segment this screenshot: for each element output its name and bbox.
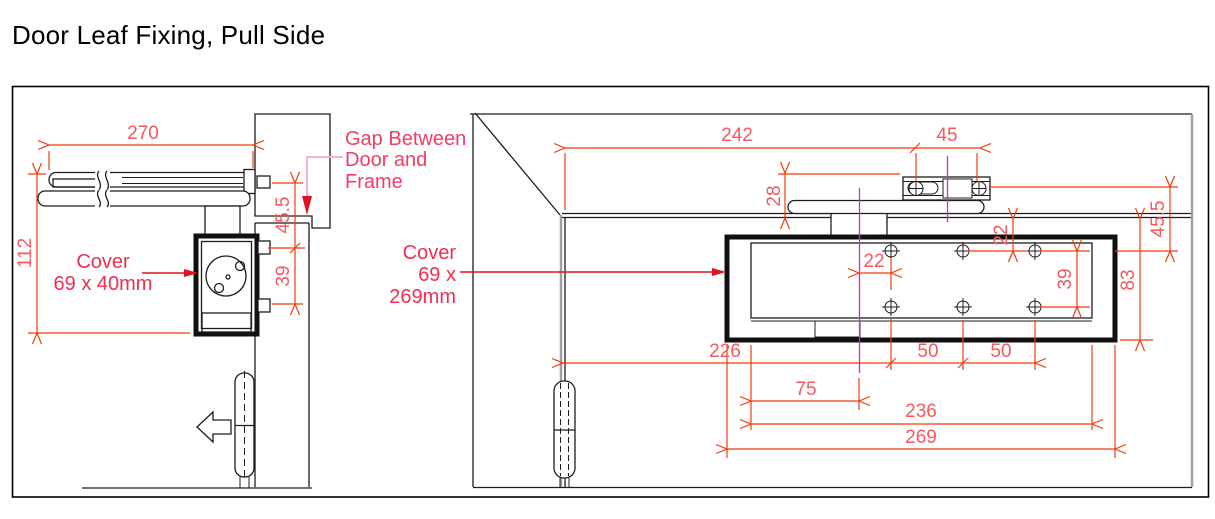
- gap-label-line3: Frame: [345, 171, 403, 193]
- cover-label-right: Cover 69 x 269mm: [389, 242, 456, 308]
- left-view-geometry: [38, 114, 330, 488]
- cover-label-left-line1: Cover: [76, 251, 130, 273]
- right-view: 242 45 28 22 45.5 83 39 22 226 50 50 75 …: [389, 113, 1192, 488]
- dim-39-right-label: 39: [1055, 268, 1076, 289]
- cover-label-right-line1: Cover: [403, 242, 457, 264]
- dim-45-label: 45: [936, 125, 957, 146]
- closer-body-left: [196, 236, 270, 334]
- hinge-left: [235, 371, 254, 488]
- right-view-geometry: [470, 113, 1192, 488]
- cover-outline-left: [196, 236, 257, 334]
- dim-226-label: 226: [709, 341, 741, 362]
- dim-45-5-right-label: 45.5: [1148, 201, 1169, 238]
- dim-83-label: 83: [1118, 269, 1139, 290]
- dim-242-label: 242: [721, 125, 753, 146]
- dim-28-label: 28: [764, 185, 785, 206]
- wall-corner-diagonal: [475, 113, 560, 215]
- closer-arm: [38, 170, 270, 237]
- cover-label-left: Cover 69 x 40mm: [54, 251, 153, 295]
- dim-50b-label: 50: [990, 341, 1011, 362]
- dim-270-label: 270: [127, 123, 159, 144]
- closer-arm-right: [788, 201, 984, 214]
- dim-22-pivot-label: 22: [863, 251, 884, 272]
- dim-45-5-left-label: 45.5: [273, 197, 294, 234]
- cover-leader-arrowhead-right: [712, 268, 726, 276]
- dim-75-label: 75: [795, 379, 816, 400]
- dim-269-label: 269: [905, 427, 937, 448]
- dim-39-left-label: 39: [273, 265, 294, 286]
- page: Door Leaf Fixing, Pull Side: [0, 0, 1215, 519]
- hinge-right: [554, 381, 575, 487]
- dim-112-label: 112: [15, 238, 36, 268]
- gap-label-line2: Door and: [345, 149, 427, 171]
- diagram-canvas: 270 112 45.5 39 Cover 69 x 40mm Gap Betw…: [0, 0, 1215, 519]
- gap-label-line1: Gap Between: [345, 128, 466, 150]
- pull-direction-arrow-icon: [197, 412, 231, 442]
- gap-label: Gap Between Door and Frame: [345, 128, 466, 193]
- dim-22-top-label: 22: [991, 224, 1012, 245]
- cover-label-left-line2: 69 x 40mm: [54, 273, 153, 295]
- dim-236-label: 236: [905, 401, 937, 422]
- pivot-block-left: [205, 206, 240, 236]
- cover-label-right-line3: 269mm: [389, 286, 456, 308]
- dim-50a-label: 50: [917, 341, 938, 362]
- cover-label-right-line2: 69 x: [418, 264, 456, 286]
- door-leaf-section: [255, 223, 309, 487]
